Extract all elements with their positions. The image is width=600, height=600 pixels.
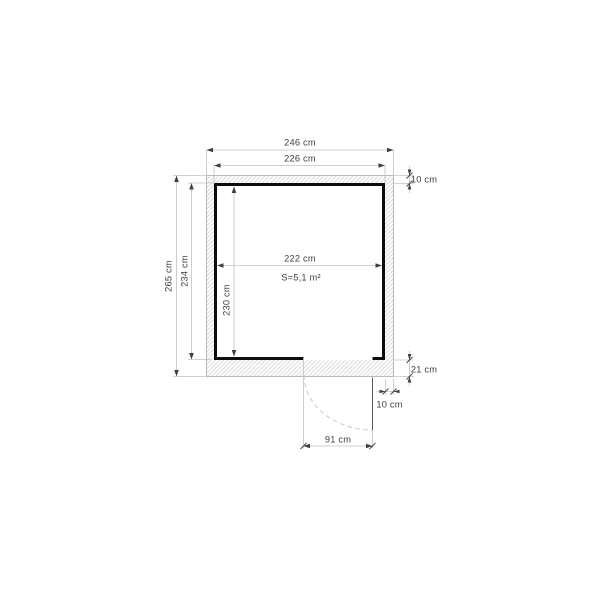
door: [304, 375, 373, 431]
dim-inner-width-label: 226 cm: [284, 154, 316, 163]
dim-wall-top-label: 10 cm: [411, 175, 437, 184]
dim-outer-depth-label: 265 cm: [164, 260, 173, 292]
door-swing-arc: [304, 375, 373, 430]
door-opening: [304, 357, 373, 361]
dim-inner-depth-label: 234 cm: [180, 255, 189, 287]
dim-room-width-label: 222 cm: [284, 254, 316, 263]
dim-door-width-label: 91 cm: [325, 435, 351, 444]
floor-plan-drawing: [0, 0, 600, 600]
room-area-label: S=5,1 m²: [281, 273, 321, 282]
dimension-wall-bottom-right: [377, 379, 400, 395]
dim-bottom-wall-label: 21 cm: [411, 365, 437, 374]
dim-room-depth-label: 230 cm: [222, 284, 231, 316]
dim-wall-bottom-right-label: 10 cm: [376, 400, 402, 409]
dim-outer-width-label: 246 cm: [284, 138, 316, 147]
floor-plan-canvas: 246 cm 226 cm 10 cm 265 cm 234 cm 222 cm…: [0, 0, 600, 600]
